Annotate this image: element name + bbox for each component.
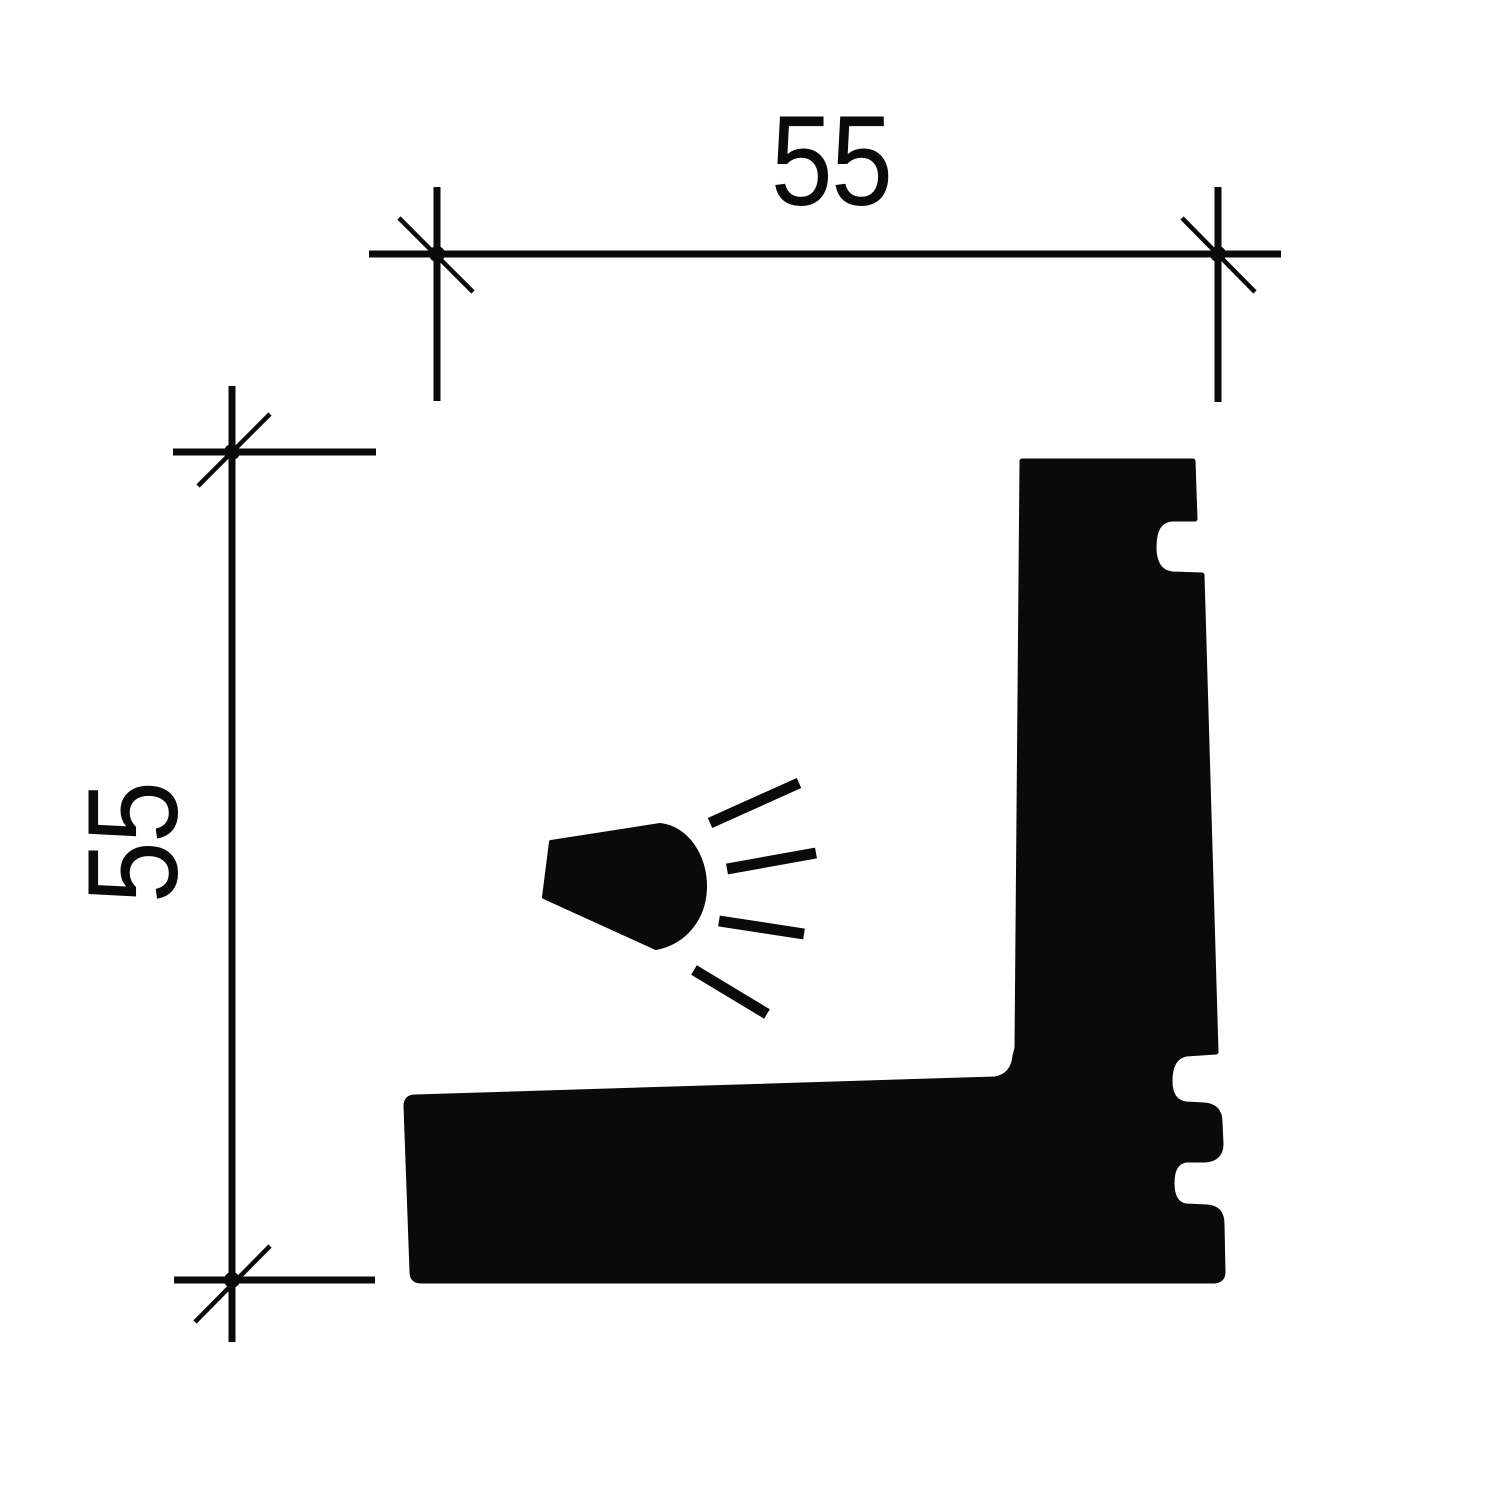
height-dimension-label: 55 (62, 783, 205, 903)
width-tick-dot-left (429, 246, 445, 262)
technical-drawing-canvas: 55 55 (0, 0, 1500, 1500)
profile-cross-section (406, 461, 1223, 1281)
width-dimension-label: 55 (771, 90, 891, 233)
height-dimension: 55 (62, 386, 376, 1342)
profile-dimension-diagram: 55 55 (0, 0, 1500, 1500)
light-icon-ray-2 (727, 853, 816, 869)
height-tick-dot-top (224, 444, 240, 460)
light-icon-lamp-cone (544, 825, 705, 948)
drawing-root: 55 55 (62, 90, 1281, 1342)
width-dimension: 55 (369, 90, 1281, 402)
height-tick-dot-bottom (224, 1272, 240, 1288)
light-icon-ray-3 (719, 921, 804, 934)
light-icon-ray-1 (710, 783, 799, 823)
light-icon (544, 783, 816, 1014)
light-icon-ray-4 (694, 970, 767, 1014)
width-tick-dot-right (1210, 246, 1226, 262)
